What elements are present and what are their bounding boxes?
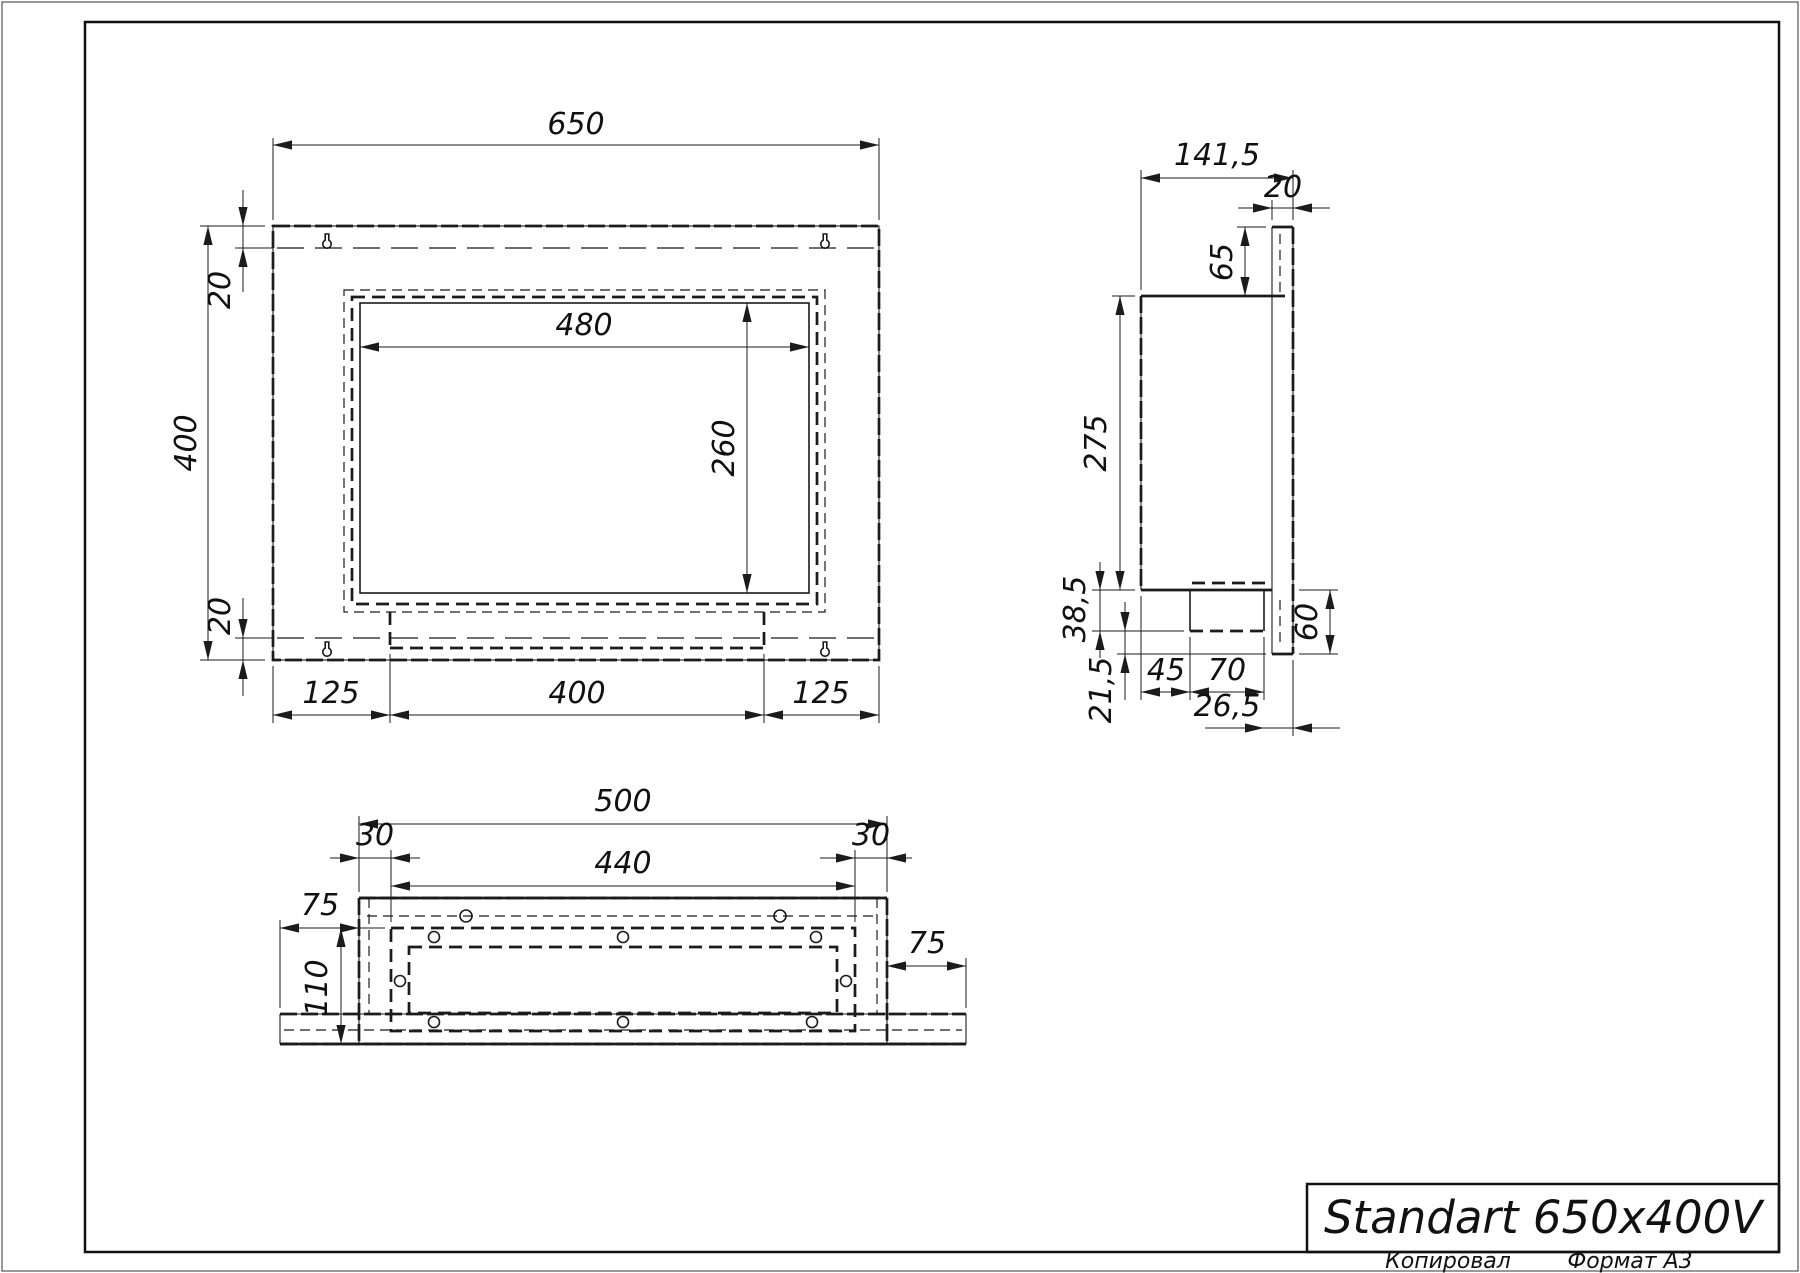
dim-front-margin-top: 20 [203, 271, 238, 309]
dim-bottom-flange-left: 75 [301, 888, 339, 923]
dim-bottom-inset-left: 30 [356, 818, 394, 853]
dim-side-body-height: 275 [1079, 414, 1114, 471]
title-block: Standart 650x400V Копировал Формат A3 [1307, 1184, 1779, 1273]
dim-mount-left: 125 [302, 676, 359, 711]
front-view: 650 400 20 20 480 260 125 400 12 [169, 107, 879, 723]
dim-side-bottom-total: 60 [1290, 603, 1325, 641]
drawing-sheet: 650 400 20 20 480 260 125 400 12 [0, 0, 1800, 1273]
dim-side-top-offset: 65 [1205, 243, 1240, 281]
copied-label: Копировал [1385, 1249, 1511, 1273]
dim-front-height: 400 [169, 414, 204, 471]
dim-bottom-flange-right: 75 [908, 926, 946, 961]
dim-bottom-width: 500 [594, 784, 651, 819]
dim-opening-height: 260 [707, 419, 742, 476]
dim-side-bottom-offset: 21,5 [1084, 657, 1119, 724]
dim-side-depth: 141,5 [1174, 138, 1260, 173]
dim-front-margin-bottom: 20 [203, 597, 238, 635]
dim-mount-center: 400 [548, 676, 605, 711]
dim-mount-right: 125 [792, 676, 849, 711]
dim-bottom-inner-width: 440 [594, 846, 651, 881]
sheet-border [2, 2, 1798, 1271]
dim-side-tray-right: 26,5 [1194, 689, 1261, 724]
dim-front-width: 650 [547, 107, 604, 142]
dim-side-tray-depth: 38,5 [1058, 576, 1093, 643]
technical-drawing: 650 400 20 20 480 260 125 400 12 [0, 0, 1800, 1273]
dim-side-tray-left: 45 [1147, 653, 1185, 688]
dim-side-tray-width: 70 [1208, 653, 1246, 688]
dim-bottom-inset-right: 30 [852, 818, 890, 853]
dim-bottom-depth: 110 [300, 959, 335, 1016]
side-view: 141,5 20 65 275 38,5 21,5 60 [1058, 138, 1340, 736]
dim-side-flange: 20 [1264, 170, 1302, 205]
drawing-title: Standart 650x400V [1324, 1191, 1765, 1244]
bottom-view: 500 30 30 440 75 75 110 [280, 784, 966, 1044]
dim-opening-width: 480 [555, 308, 612, 343]
format-label: Формат A3 [1567, 1249, 1692, 1273]
